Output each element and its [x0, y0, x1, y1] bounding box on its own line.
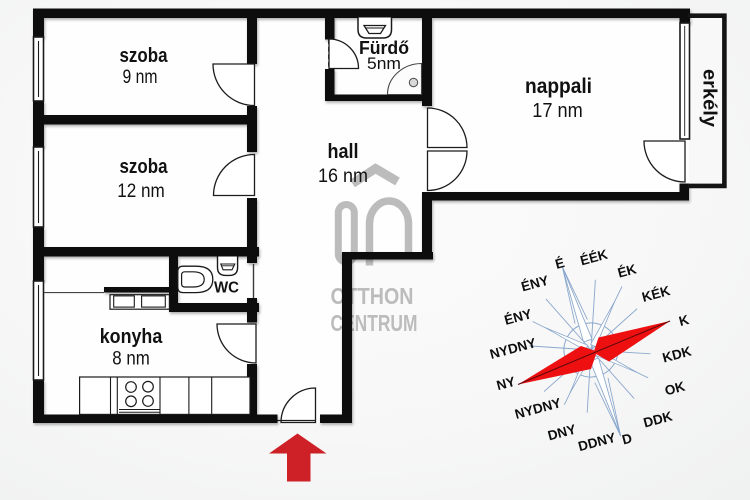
svg-text:szoba: szoba: [120, 156, 169, 178]
svg-text:5nm: 5nm: [367, 54, 401, 73]
svg-text:hall: hall: [328, 141, 359, 163]
svg-text:erkély: erkély: [699, 69, 720, 127]
svg-text:16 nm: 16 nm: [318, 165, 368, 187]
svg-text:9 nm: 9 nm: [123, 66, 158, 88]
svg-text:nappali: nappali: [525, 75, 592, 98]
svg-text:konyha: konyha: [100, 326, 163, 348]
svg-text:8 nm: 8 nm: [112, 348, 150, 370]
svg-text:szoba: szoba: [120, 45, 169, 67]
svg-text:WC: WC: [214, 280, 239, 297]
svg-text:12 nm: 12 nm: [117, 180, 165, 202]
svg-text:17 nm: 17 nm: [532, 100, 583, 122]
